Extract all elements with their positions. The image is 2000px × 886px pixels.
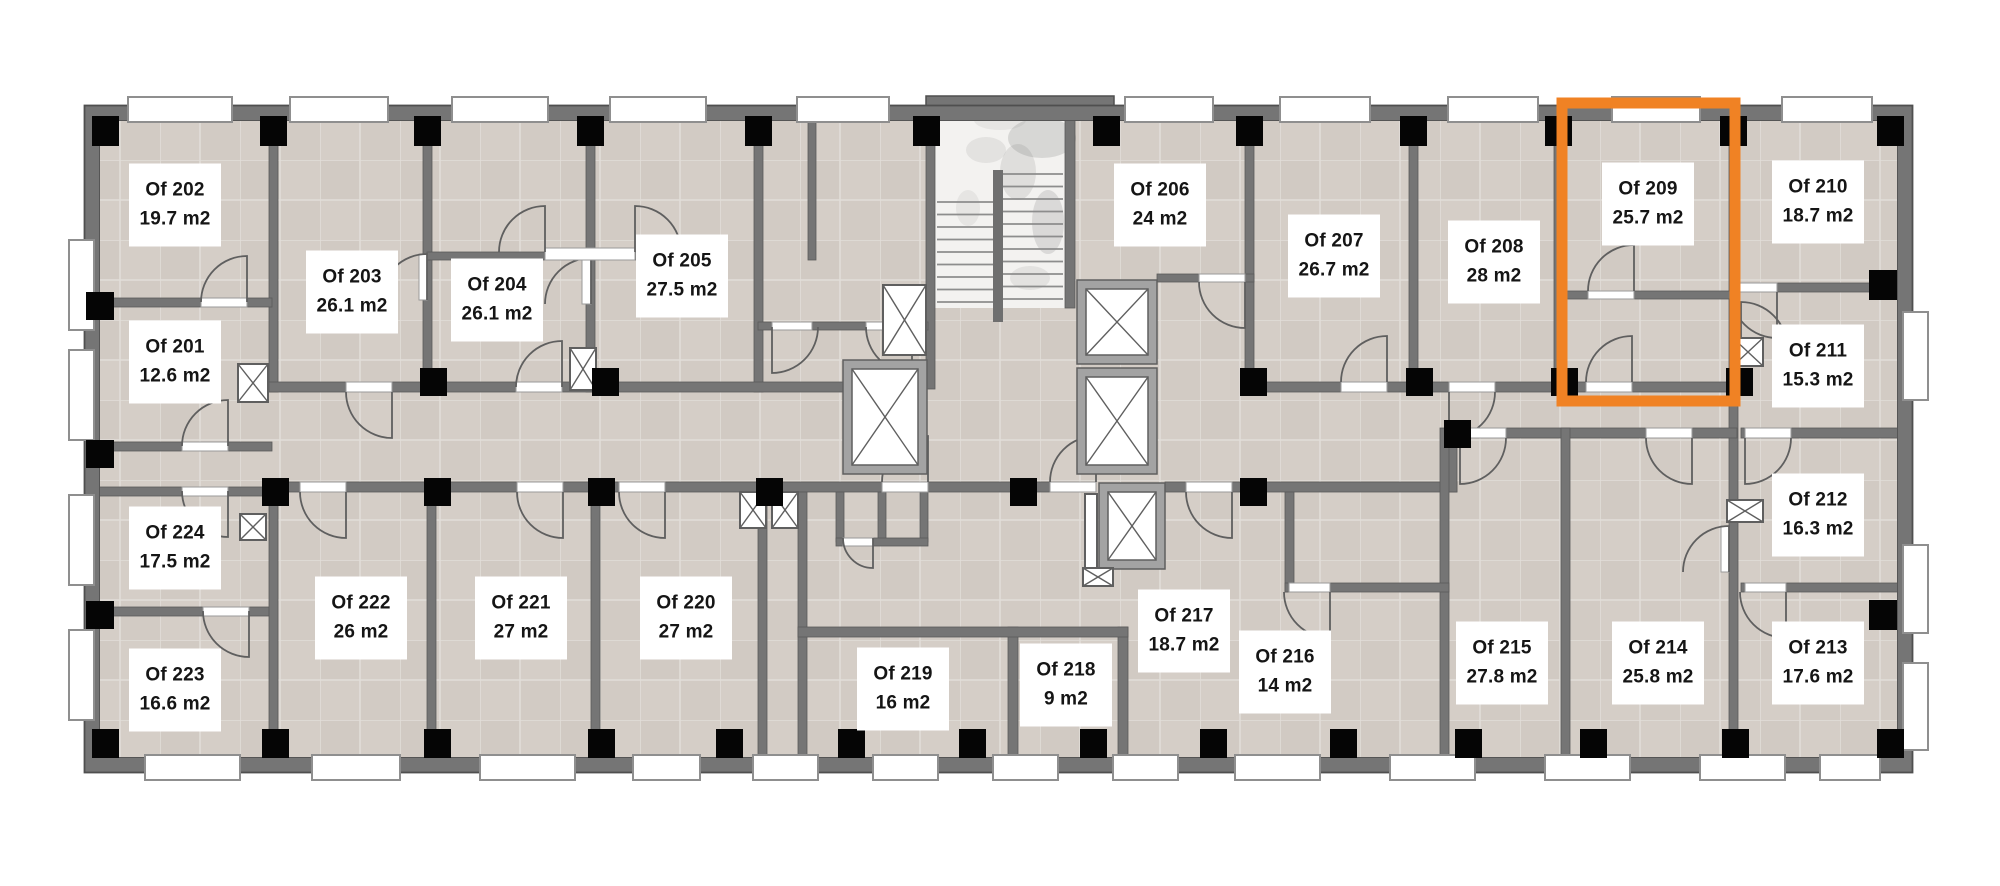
shaft-x-icon [238, 364, 268, 402]
room-id: Of 202 [130, 177, 220, 206]
room-area: 25.8 m2 [1613, 663, 1703, 692]
elevator-icon [843, 360, 927, 474]
room-label-of-221[interactable]: Of 22127 m2 [475, 577, 567, 660]
room-id: Of 209 [1603, 176, 1693, 205]
door-opening [1588, 291, 1634, 299]
door-opening [772, 322, 812, 330]
room-id: Of 218 [1021, 657, 1111, 686]
room-area: 9 m2 [1021, 685, 1111, 714]
room-label-of-212[interactable]: Of 21216.3 m2 [1772, 474, 1864, 557]
door-opening [182, 442, 228, 451]
shaft-x-icon [240, 514, 266, 540]
room-area: 26.1 m2 [452, 300, 542, 329]
door-opening [182, 487, 228, 496]
room-label-of-203[interactable]: Of 20326.1 m2 [306, 251, 398, 334]
elevator-icon [1077, 368, 1157, 474]
door-opening [300, 482, 346, 492]
door-opening [1289, 583, 1330, 592]
door-opening [1586, 382, 1632, 392]
door-opening [1745, 583, 1786, 592]
door-opening [1186, 482, 1232, 492]
door-opening [1449, 382, 1495, 392]
room-label-of-224[interactable]: Of 22417.5 m2 [129, 507, 221, 590]
room-label-of-215[interactable]: Of 21527.8 m2 [1456, 622, 1548, 705]
room-label-of-207[interactable]: Of 20726.7 m2 [1288, 215, 1380, 298]
room-id: Of 221 [476, 590, 566, 619]
room-label-of-209[interactable]: Of 20925.7 m2 [1602, 163, 1694, 246]
room-area: 14 m2 [1240, 672, 1330, 701]
room-area: 16.6 m2 [130, 690, 220, 719]
elevator-icon [1077, 280, 1157, 364]
room-area: 25.7 m2 [1603, 204, 1693, 233]
door-opening [1050, 482, 1096, 492]
room-area: 27.8 m2 [1457, 663, 1547, 692]
room-area: 16 m2 [858, 689, 948, 718]
door-opening [346, 382, 392, 392]
room-area: 28 m2 [1449, 262, 1539, 291]
room-id: Of 203 [307, 264, 397, 293]
room-id: Of 205 [637, 248, 727, 277]
door-opening [419, 254, 427, 300]
door-opening [517, 482, 563, 492]
room-id: Of 214 [1613, 635, 1703, 664]
floor-plan-drawing [0, 0, 2000, 886]
room-id: Of 220 [641, 590, 731, 619]
room-area: 17.6 m2 [1773, 663, 1863, 692]
room-area: 16.3 m2 [1773, 515, 1863, 544]
room-id: Of 206 [1115, 177, 1205, 206]
room-area: 24 m2 [1115, 205, 1205, 234]
room-area: 27.5 m2 [637, 276, 727, 305]
door-opening [582, 258, 591, 304]
shaft-x-icon [1727, 500, 1763, 522]
room-id: Of 217 [1139, 603, 1229, 632]
room-area: 26.1 m2 [307, 292, 397, 321]
room-label-of-216[interactable]: Of 21614 m2 [1239, 631, 1331, 714]
elevator-icon [1099, 483, 1165, 569]
room-id: Of 210 [1773, 174, 1863, 203]
room-label-of-210[interactable]: Of 21018.7 m2 [1772, 161, 1864, 244]
floor-plan-screenshot: Of 20112.6 m2Of 20219.7 m2Of 20326.1 m2O… [0, 0, 2000, 886]
room-id: Of 204 [452, 272, 542, 301]
door-opening [619, 482, 665, 492]
room-label-of-206[interactable]: Of 20624 m2 [1114, 164, 1206, 247]
stairs-icon [935, 110, 1076, 322]
room-area: 18.7 m2 [1139, 631, 1229, 660]
room-id: Of 213 [1773, 635, 1863, 664]
room-label-of-213[interactable]: Of 21317.6 m2 [1772, 622, 1864, 705]
room-label-of-218[interactable]: Of 2189 m2 [1020, 644, 1112, 727]
door-opening [203, 607, 249, 616]
room-id: Of 222 [316, 590, 406, 619]
door-opening [1646, 428, 1692, 438]
room-id: Of 223 [130, 662, 220, 691]
room-label-of-205[interactable]: Of 20527.5 m2 [636, 235, 728, 318]
door-opening [1721, 526, 1729, 572]
room-label-of-214[interactable]: Of 21425.8 m2 [1612, 622, 1704, 705]
room-area: 12.6 m2 [130, 362, 220, 391]
room-label-of-211[interactable]: Of 21115.3 m2 [1772, 325, 1864, 408]
room-label-of-208[interactable]: Of 20828 m2 [1448, 221, 1540, 304]
room-area: 26 m2 [316, 618, 406, 647]
room-id: Of 207 [1289, 228, 1379, 257]
room-id: Of 219 [858, 661, 948, 690]
door-opening [516, 382, 562, 392]
room-label-of-222[interactable]: Of 22226 m2 [315, 577, 407, 660]
room-label-of-219[interactable]: Of 21916 m2 [857, 648, 949, 731]
room-id: Of 212 [1773, 487, 1863, 516]
room-label-of-204[interactable]: Of 20426.1 m2 [451, 259, 543, 342]
room-id: Of 215 [1457, 635, 1547, 664]
room-id: Of 211 [1773, 338, 1863, 367]
door-opening [843, 538, 873, 546]
elevator-shaft-icon [1085, 494, 1097, 568]
room-area: 15.3 m2 [1773, 366, 1863, 395]
room-id: Of 216 [1240, 644, 1330, 673]
room-area: 26.7 m2 [1289, 256, 1379, 285]
room-id: Of 224 [130, 520, 220, 549]
room-area: 27 m2 [476, 618, 566, 647]
shaft-x-icon [1083, 568, 1113, 586]
door-opening [1745, 428, 1791, 438]
room-area: 18.7 m2 [1773, 202, 1863, 231]
door-opening [1341, 382, 1387, 392]
room-area: 27 m2 [641, 618, 731, 647]
room-label-of-202[interactable]: Of 20219.7 m2 [129, 164, 221, 247]
room-label-of-201[interactable]: Of 20112.6 m2 [129, 321, 221, 404]
door-opening [201, 298, 247, 307]
room-area: 17.5 m2 [130, 548, 220, 577]
room-id: Of 208 [1449, 234, 1539, 263]
door-opening [1199, 274, 1245, 282]
room-label-of-223[interactable]: Of 22316.6 m2 [129, 649, 221, 732]
room-id: Of 201 [130, 334, 220, 363]
room-label-of-217[interactable]: Of 21718.7 m2 [1138, 590, 1230, 673]
elevator-shaft-icon [883, 285, 926, 355]
door-opening [882, 482, 928, 492]
room-area: 19.7 m2 [130, 205, 220, 234]
room-label-of-220[interactable]: Of 22027 m2 [640, 577, 732, 660]
door-opening [545, 248, 635, 260]
